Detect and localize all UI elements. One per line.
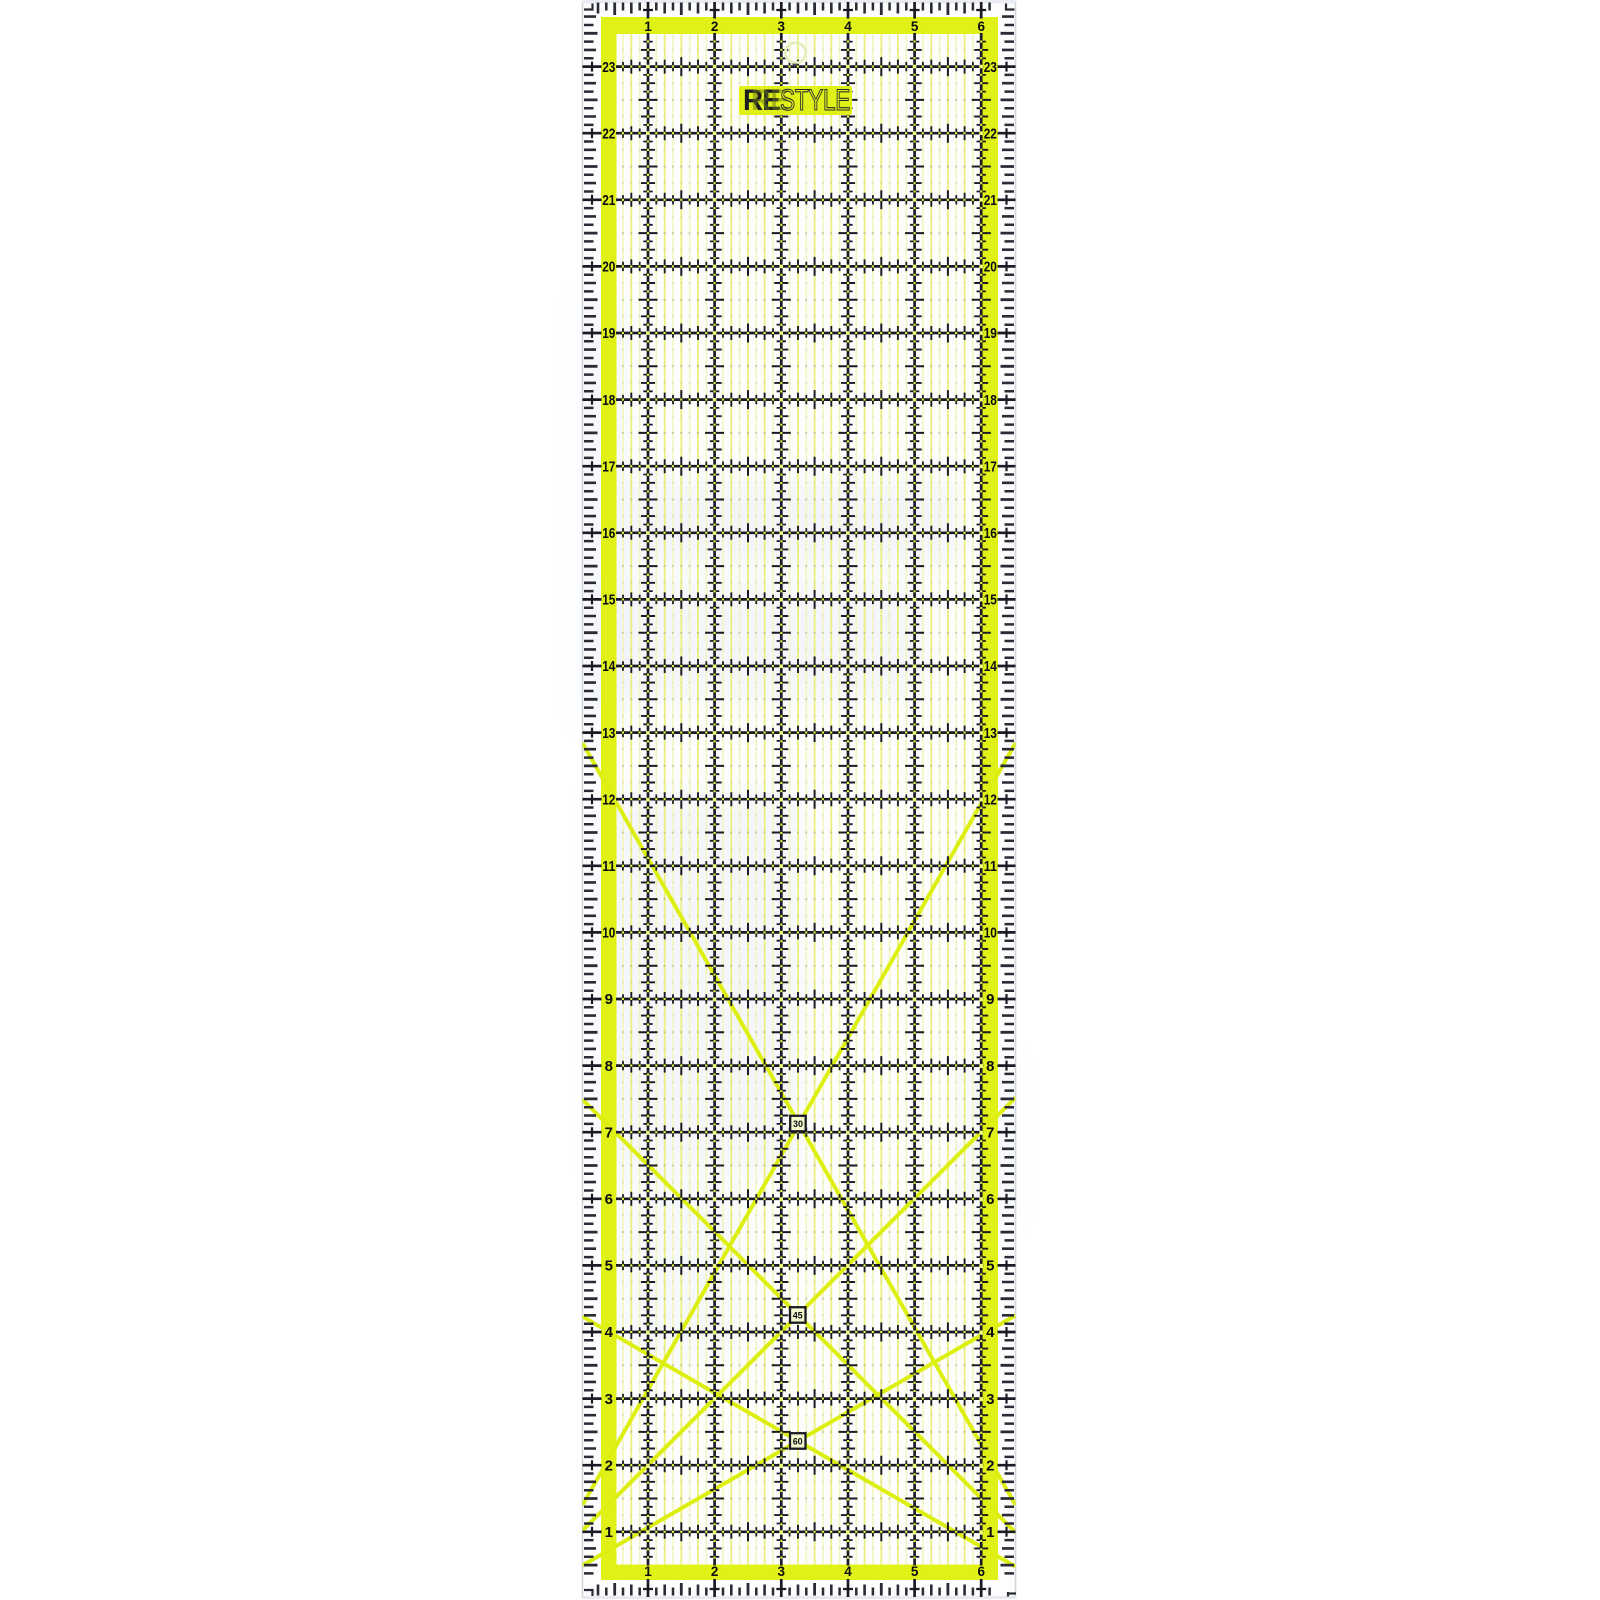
svg-text:10: 10 <box>984 925 997 942</box>
svg-text:2: 2 <box>711 19 719 34</box>
svg-text:21: 21 <box>984 192 997 209</box>
svg-text:4: 4 <box>605 1324 614 1341</box>
svg-text:15: 15 <box>984 592 997 609</box>
svg-text:23: 23 <box>602 59 615 76</box>
svg-text:5: 5 <box>605 1258 613 1275</box>
svg-text:22: 22 <box>984 125 997 142</box>
svg-text:45: 45 <box>793 1311 804 1322</box>
svg-text:7: 7 <box>986 1124 994 1141</box>
svg-text:16: 16 <box>984 525 997 542</box>
svg-text:14: 14 <box>984 658 998 675</box>
svg-text:19: 19 <box>602 325 615 342</box>
svg-text:4: 4 <box>986 1324 995 1341</box>
svg-text:11: 11 <box>984 858 997 875</box>
svg-text:6: 6 <box>977 1564 985 1579</box>
svg-text:2: 2 <box>711 1564 719 1579</box>
svg-text:1: 1 <box>644 1564 652 1579</box>
svg-text:STYLE: STYLE <box>780 84 850 117</box>
svg-text:20: 20 <box>984 259 997 276</box>
svg-text:60: 60 <box>793 1437 803 1448</box>
svg-text:5: 5 <box>911 19 919 34</box>
svg-text:5: 5 <box>911 1564 919 1579</box>
svg-text:12: 12 <box>984 791 997 808</box>
svg-text:17: 17 <box>602 458 615 475</box>
svg-text:10: 10 <box>602 925 615 942</box>
svg-text:2: 2 <box>986 1457 994 1474</box>
svg-text:13: 13 <box>984 725 997 742</box>
svg-text:18: 18 <box>984 392 997 409</box>
svg-text:19: 19 <box>984 325 997 342</box>
svg-text:6: 6 <box>605 1191 613 1208</box>
svg-text:22: 22 <box>602 125 615 142</box>
svg-text:20: 20 <box>602 259 615 276</box>
svg-text:13: 13 <box>602 725 615 742</box>
svg-text:9: 9 <box>986 991 994 1008</box>
svg-text:15: 15 <box>602 592 615 609</box>
svg-text:21: 21 <box>602 192 615 209</box>
svg-text:3: 3 <box>778 1564 786 1579</box>
svg-text:4: 4 <box>844 1564 852 1579</box>
svg-text:5: 5 <box>986 1258 994 1275</box>
svg-text:8: 8 <box>986 1058 994 1075</box>
svg-text:1: 1 <box>986 1524 994 1541</box>
svg-text:16: 16 <box>602 525 615 542</box>
svg-text:1: 1 <box>605 1524 613 1541</box>
svg-text:11: 11 <box>602 858 615 875</box>
svg-text:30: 30 <box>793 1119 803 1130</box>
svg-text:9: 9 <box>605 991 613 1008</box>
svg-text:17: 17 <box>984 458 997 475</box>
svg-text:4: 4 <box>844 19 852 34</box>
svg-text:6: 6 <box>986 1191 994 1208</box>
svg-text:14: 14 <box>602 658 616 675</box>
svg-text:23: 23 <box>984 59 997 76</box>
svg-text:8: 8 <box>605 1058 613 1075</box>
svg-text:12: 12 <box>602 791 615 808</box>
svg-text:3: 3 <box>778 19 786 34</box>
svg-text:18: 18 <box>602 392 615 409</box>
svg-text:1: 1 <box>644 19 652 34</box>
svg-text:7: 7 <box>605 1124 613 1141</box>
svg-text:3: 3 <box>986 1391 994 1408</box>
svg-text:3: 3 <box>605 1391 613 1408</box>
svg-text:2: 2 <box>605 1457 613 1474</box>
svg-text:6: 6 <box>977 19 985 34</box>
